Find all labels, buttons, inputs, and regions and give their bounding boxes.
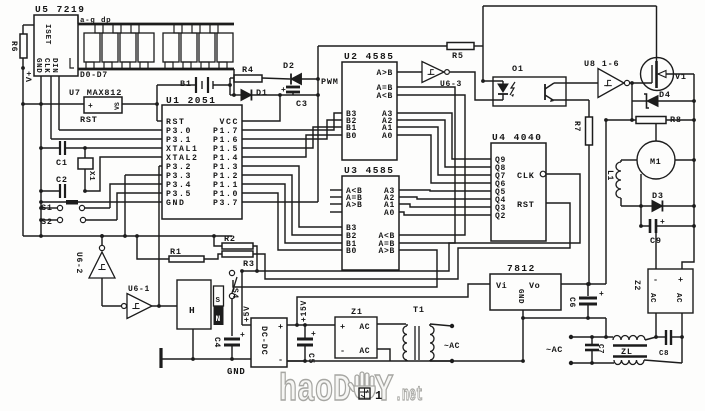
svg-text:H: H bbox=[189, 305, 195, 316]
svg-text:7812: 7812 bbox=[507, 263, 536, 274]
svg-text:dp: dp bbox=[101, 17, 111, 25]
svg-text:X1: X1 bbox=[87, 171, 95, 181]
svg-text:U6-2: U6-2 bbox=[74, 252, 83, 274]
svg-text:GND: GND bbox=[34, 58, 42, 73]
svg-text:D0-D7: D0-D7 bbox=[80, 71, 108, 80]
svg-text:R5: R5 bbox=[452, 51, 464, 61]
svg-text:P1.6: P1.6 bbox=[213, 136, 239, 145]
svg-text:+: + bbox=[678, 275, 683, 285]
svg-text:Q2: Q2 bbox=[495, 212, 506, 221]
svg-text:A>B: A>B bbox=[346, 201, 363, 210]
svg-text:Z2: Z2 bbox=[632, 280, 641, 291]
svg-text:B1: B1 bbox=[180, 79, 192, 89]
svg-text:+: + bbox=[311, 330, 316, 339]
svg-text:U3 4585: U3 4585 bbox=[344, 165, 394, 176]
svg-text:P3.1: P3.1 bbox=[166, 136, 192, 145]
svg-text:P3.3: P3.3 bbox=[166, 172, 192, 181]
svg-text:M1: M1 bbox=[650, 157, 661, 167]
svg-text:-: - bbox=[340, 346, 345, 356]
svg-text:C5: C5 bbox=[306, 353, 315, 364]
svg-text:D3: D3 bbox=[652, 191, 664, 201]
svg-text:P1.2: P1.2 bbox=[213, 172, 239, 181]
svg-text:P1.7: P1.7 bbox=[213, 127, 239, 136]
svg-text:RST: RST bbox=[517, 200, 535, 210]
svg-text:ISET: ISET bbox=[43, 24, 51, 45]
svg-text:Vo: Vo bbox=[529, 281, 540, 291]
svg-text:GND: GND bbox=[516, 289, 524, 304]
svg-text:N: N bbox=[216, 315, 221, 324]
svg-text:C6: C6 bbox=[567, 297, 576, 308]
svg-text:AC: AC bbox=[359, 347, 370, 356]
svg-text:R6: R6 bbox=[9, 41, 18, 52]
svg-text:.net: .net bbox=[395, 384, 423, 407]
svg-text:+: + bbox=[240, 331, 245, 340]
svg-text:C8: C8 bbox=[659, 350, 669, 358]
svg-text:P3.7: P3.7 bbox=[213, 199, 239, 208]
svg-text:C4: C4 bbox=[212, 337, 221, 348]
svg-text:AC: AC bbox=[674, 293, 682, 303]
svg-text:XTAL2: XTAL2 bbox=[166, 154, 199, 163]
svg-text:GND: GND bbox=[166, 199, 186, 208]
svg-text:+: + bbox=[88, 102, 93, 111]
svg-text:P3.5: P3.5 bbox=[166, 190, 192, 199]
svg-text:S4: S4 bbox=[230, 288, 239, 299]
svg-text:+: + bbox=[340, 322, 345, 332]
svg-text:PWM: PWM bbox=[321, 77, 339, 87]
svg-text:S: S bbox=[216, 297, 221, 305]
svg-text:B0: B0 bbox=[346, 247, 357, 256]
svg-text:VCC: VCC bbox=[219, 118, 239, 127]
svg-text:A>B: A>B bbox=[378, 247, 395, 256]
svg-text:L1: L1 bbox=[605, 170, 614, 181]
svg-text:-: - bbox=[278, 355, 283, 365]
svg-text:~AC: ~AC bbox=[546, 345, 563, 355]
svg-text:VS: VS bbox=[114, 102, 121, 110]
svg-text:RST: RST bbox=[166, 118, 186, 127]
svg-text:-: - bbox=[653, 275, 658, 285]
svg-text:D1: D1 bbox=[256, 88, 268, 98]
svg-text:ZL: ZL bbox=[621, 347, 633, 357]
svg-text:U1 2051: U1 2051 bbox=[166, 95, 216, 106]
svg-text:C2: C2 bbox=[56, 175, 68, 185]
svg-text:R7: R7 bbox=[572, 121, 581, 132]
svg-text:+15V: +15V bbox=[300, 300, 309, 322]
svg-text:D2: D2 bbox=[283, 61, 295, 71]
svg-text:O1: O1 bbox=[512, 64, 524, 74]
svg-text:1: 1 bbox=[375, 389, 382, 403]
svg-text:V+: V+ bbox=[25, 70, 35, 82]
svg-text:P3.0: P3.0 bbox=[166, 127, 192, 136]
svg-text:R4: R4 bbox=[242, 65, 254, 75]
svg-text:haoD: haoD bbox=[279, 369, 351, 411]
svg-text:Z1: Z1 bbox=[351, 307, 363, 317]
svg-text:P1.3: P1.3 bbox=[213, 163, 239, 172]
svg-text:P1.4: P1.4 bbox=[213, 154, 239, 163]
svg-text:+: + bbox=[281, 86, 286, 95]
svg-text:C3: C3 bbox=[296, 99, 308, 109]
svg-text:C1: C1 bbox=[56, 158, 68, 168]
svg-text:a-g: a-g bbox=[80, 17, 95, 25]
svg-text:A0: A0 bbox=[384, 209, 395, 218]
svg-text:Vi: Vi bbox=[496, 281, 507, 291]
svg-text:RST: RST bbox=[80, 115, 98, 125]
svg-text:+: + bbox=[599, 290, 604, 299]
svg-text:P3.2: P3.2 bbox=[166, 163, 192, 172]
svg-text:AC: AC bbox=[359, 323, 370, 332]
svg-text:U5 7219: U5 7219 bbox=[35, 4, 85, 15]
svg-text:U6-1: U6-1 bbox=[128, 285, 150, 294]
svg-text:DC-DC: DC-DC bbox=[259, 326, 269, 356]
svg-text:P1.1: P1.1 bbox=[213, 181, 239, 190]
svg-text:T1: T1 bbox=[413, 305, 425, 315]
svg-text:~AC: ~AC bbox=[444, 342, 460, 351]
svg-text:+: + bbox=[278, 322, 283, 332]
svg-text:GND: GND bbox=[227, 367, 246, 377]
svg-text:+: + bbox=[660, 218, 665, 227]
svg-text:U8 1-6: U8 1-6 bbox=[584, 59, 619, 69]
svg-text:U4 4040: U4 4040 bbox=[492, 132, 542, 143]
svg-text:A0: A0 bbox=[382, 132, 393, 141]
svg-text:D4: D4 bbox=[659, 90, 671, 100]
svg-text:C7: C7 bbox=[596, 344, 604, 354]
svg-text:DIN: DIN bbox=[50, 58, 58, 73]
svg-text:P3.4: P3.4 bbox=[166, 181, 192, 190]
svg-text:R1: R1 bbox=[170, 247, 182, 257]
svg-text:CLK: CLK bbox=[42, 58, 50, 73]
svg-text:A>B: A>B bbox=[376, 69, 393, 78]
svg-text:S2: S2 bbox=[41, 217, 53, 227]
svg-text:AC: AC bbox=[648, 293, 656, 303]
svg-text:P1.5: P1.5 bbox=[213, 145, 239, 154]
svg-text:B0: B0 bbox=[346, 132, 357, 141]
svg-text:CLK: CLK bbox=[517, 171, 535, 181]
svg-text:U7 MAX812: U7 MAX812 bbox=[69, 88, 122, 98]
svg-text:P1.0: P1.0 bbox=[213, 190, 239, 199]
svg-text:A<B: A<B bbox=[376, 92, 393, 101]
svg-text:R3: R3 bbox=[243, 259, 255, 269]
svg-text:U2 4585: U2 4585 bbox=[344, 51, 394, 62]
svg-text:XTAL1: XTAL1 bbox=[166, 145, 199, 154]
